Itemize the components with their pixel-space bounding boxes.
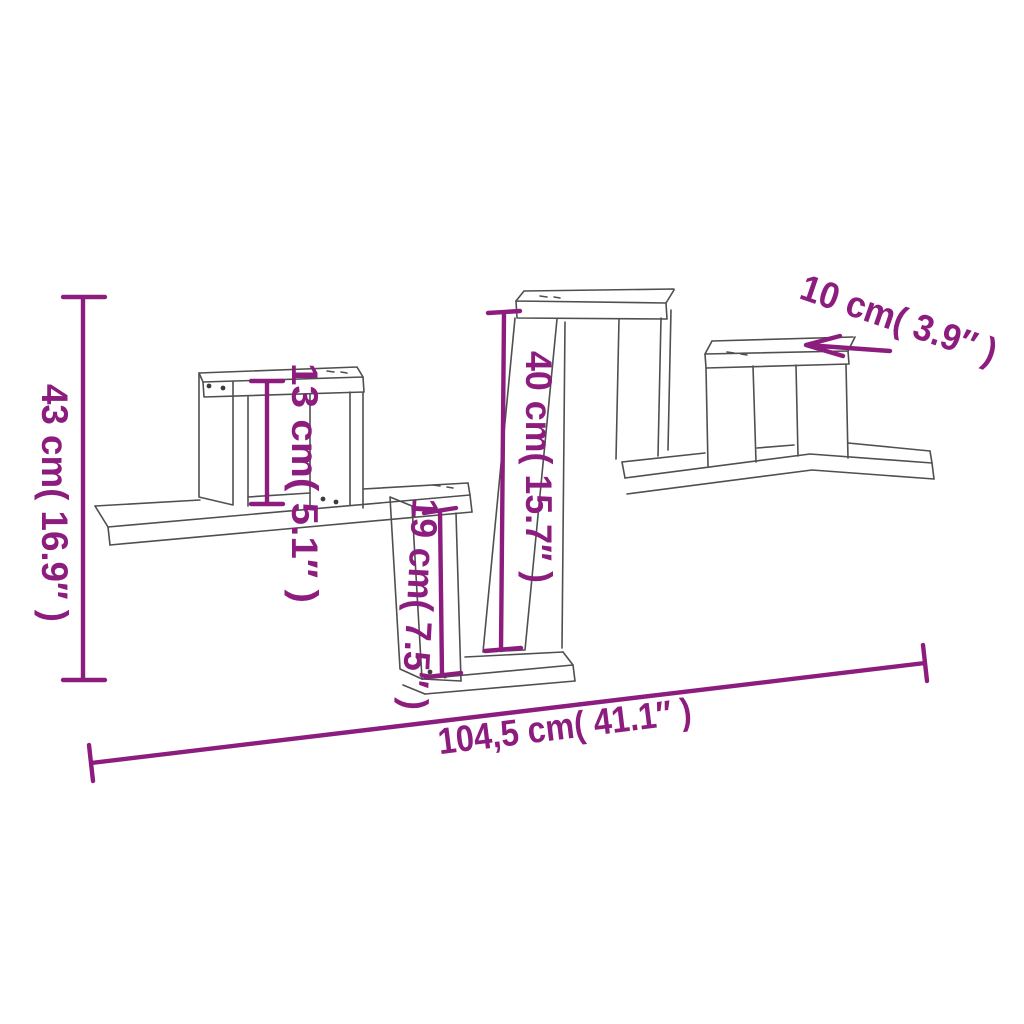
shelf-drawing	[95, 289, 934, 694]
dimension-tall-section-height: 40 cm( 15.7″ )	[485, 311, 559, 651]
dimension-label-total-height: 43 cm( 16.9″ )	[34, 384, 75, 622]
dimension-shelf-depth: 10 cm( 3.9″ )	[795, 267, 1002, 373]
dimension-label-small-cube-height: 13 cm( 5.1″ )	[284, 363, 325, 603]
diagram-page: 43 cm( 16.9″ ) 13 cm( 5.1″ ) 40 cm( 15.7…	[0, 0, 1024, 1024]
dimension-diagram: 43 cm( 16.9″ ) 13 cm( 5.1″ ) 40 cm( 15.7…	[0, 0, 1024, 1024]
dimension-drop-section-height: 19 cm( 7.5″ )	[394, 497, 461, 711]
dimension-label-drop-section-height: 19 cm( 7.5″ )	[394, 497, 446, 711]
dimension-label-total-width: 104,5 cm( 41.1″ )	[436, 690, 694, 762]
dimension-small-cube-height: 13 cm( 5.1″ )	[251, 363, 325, 603]
tall-box	[483, 289, 674, 652]
dimension-label-shelf-depth: 10 cm( 3.9″ )	[795, 267, 1002, 373]
dimension-total-width: 104,5 cm( 41.1″ )	[89, 645, 927, 781]
dimension-total-height: 43 cm( 16.9″ )	[34, 297, 105, 680]
dimension-label-tall-section-height: 40 cm( 15.7″ )	[518, 351, 559, 583]
right-shelf-board	[622, 443, 934, 494]
